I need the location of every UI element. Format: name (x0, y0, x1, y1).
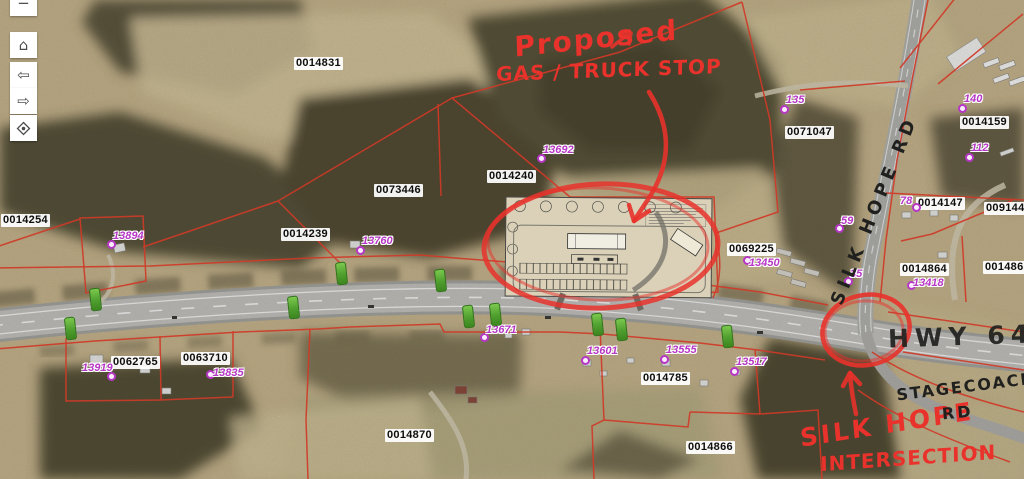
aerial-map-canvas[interactable] (0, 0, 1024, 479)
home-icon: ⌂ (19, 36, 29, 54)
zoom-out-button[interactable]: − (10, 0, 37, 16)
locate-button[interactable] (10, 115, 37, 141)
previous-extent-button[interactable]: ⇦ (10, 62, 37, 88)
locate-icon (16, 121, 31, 136)
home-button[interactable]: ⌂ (10, 32, 37, 58)
zoom-out-icon: − (17, 0, 30, 12)
site-plan-overlay (505, 197, 712, 311)
next-extent-button[interactable]: ⇨ (10, 88, 37, 114)
map-viewer: 0014831001425400734460014240001423900627… (0, 0, 1024, 479)
next-extent-icon: ⇨ (17, 92, 30, 110)
previous-extent-icon: ⇦ (17, 66, 30, 84)
